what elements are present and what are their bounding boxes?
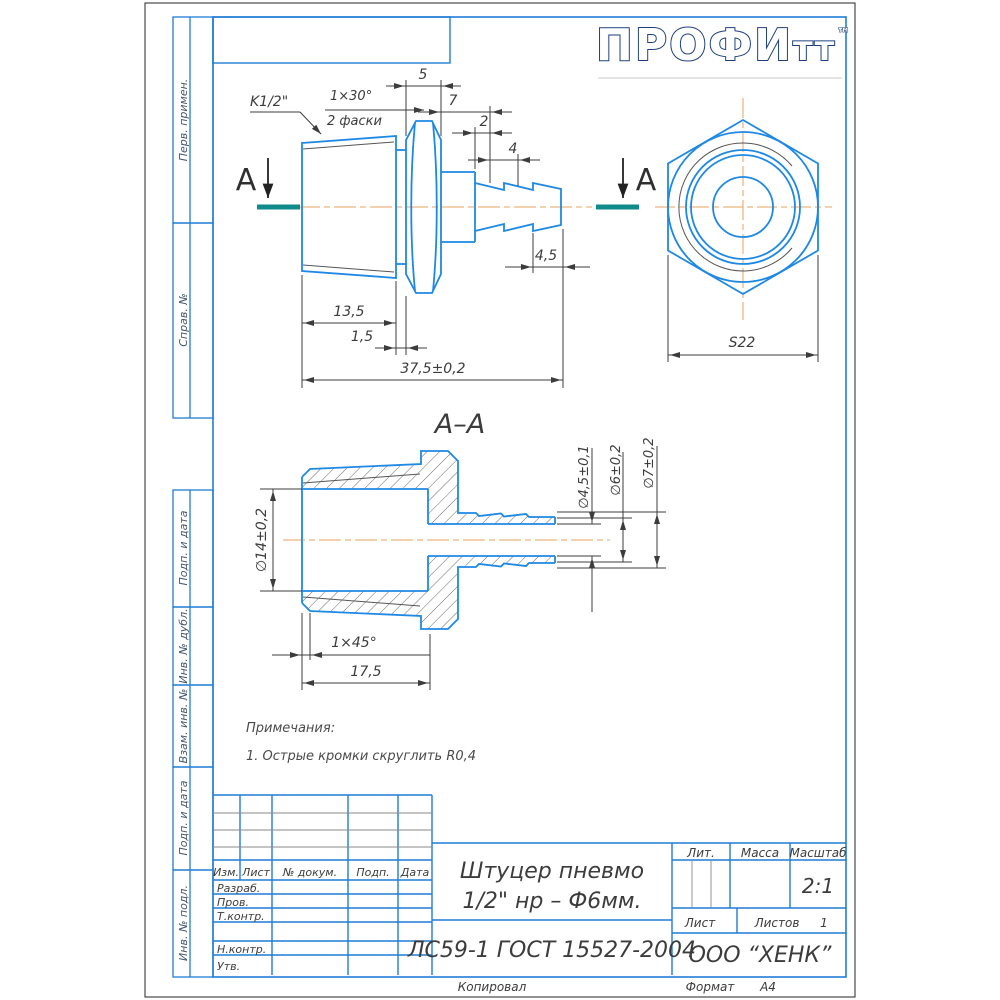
notes-item-1: 1. Острые кромки скруглить R0,4 bbox=[246, 749, 476, 764]
dim-chamfer45: 1×45° bbox=[331, 635, 376, 651]
section-label-left: А bbox=[236, 163, 257, 198]
dim-len135: 13,5 bbox=[333, 304, 364, 320]
dim-thread: K1/2" bbox=[250, 94, 288, 110]
sign-nkontr: Н.контр. bbox=[217, 943, 266, 956]
scale-label: Масштаб bbox=[789, 846, 847, 860]
sign-razrab: Разраб. bbox=[217, 882, 260, 895]
dim-dia14: ∅14±0,2 bbox=[254, 508, 270, 572]
scale-value: 2:1 bbox=[802, 874, 834, 898]
margin-label-perv-primen: Перв. примен. bbox=[177, 79, 190, 162]
sign-tkontr: Т.контр. bbox=[217, 910, 265, 923]
logo-main: ПРОФИ bbox=[596, 20, 793, 71]
dim-wrench-size: S22 bbox=[729, 335, 756, 351]
sign-prov: Пров. bbox=[217, 896, 249, 909]
material-designation: ЛС59-1 ГОСТ 15527-2004 bbox=[407, 938, 696, 963]
dim-dia7: ∅7±0,2 bbox=[642, 437, 657, 488]
dim-len2: 2 bbox=[480, 114, 489, 130]
sheets-label: Листов bbox=[754, 916, 800, 930]
rev-header-podp: Подп. bbox=[356, 866, 389, 879]
dim-chamfer30-qty: 2 фаски bbox=[327, 114, 382, 129]
margin-label-podp-data-2: Подп. и дата bbox=[177, 780, 190, 855]
dim-chamfer30: 1×30° bbox=[330, 89, 372, 104]
doc-name-line2: 1/2" нр – Ф6мм. bbox=[463, 889, 642, 914]
dim-hex-width: 5 bbox=[419, 67, 428, 83]
doc-name-line1: Штуцер пневмо bbox=[460, 859, 644, 884]
dim-len15: 1,5 bbox=[351, 329, 373, 345]
dim-dia6: ∅6±0,2 bbox=[609, 444, 624, 495]
sign-utv: Утв. bbox=[217, 960, 240, 973]
rev-header-izm: Изм. bbox=[213, 866, 239, 879]
footer-format-label: Формат bbox=[686, 980, 736, 994]
notes-title: Примечания: bbox=[246, 721, 335, 736]
dim-len4: 4 bbox=[509, 141, 518, 157]
margin-label-sprav-no: Справ. № bbox=[177, 293, 190, 347]
rev-header-data: Дата bbox=[400, 866, 430, 879]
gost-drawing-canvas: ПРОФИтт™ Перв. примен. Справ. № Подп. и … bbox=[0, 0, 1000, 1000]
logo-tm-mark: ™ bbox=[836, 26, 852, 42]
lit-label: Лит. bbox=[686, 846, 715, 860]
dim-len175: 17,5 bbox=[350, 664, 381, 680]
section-label-right: А bbox=[636, 163, 657, 198]
footer-format-value: А4 bbox=[759, 980, 776, 994]
dim-dia45: ∅4,5±0,1 bbox=[577, 445, 592, 509]
margin-label-podp-data-1: Подп. и дата bbox=[177, 510, 190, 585]
sheet-label: Лист bbox=[684, 916, 716, 930]
dim-total-length: 37,5±0,2 bbox=[400, 361, 465, 377]
margin-label-inv-podl: Инв. № подл. bbox=[177, 885, 190, 961]
footer-copied: Копировал bbox=[458, 980, 527, 994]
dim-len7: 7 bbox=[449, 93, 458, 109]
drawing-sheet-page: { "sheet": { "logo_text": "ПРОФИ", "logo… bbox=[0, 0, 1000, 1000]
company-name: ООО “ХЕНК” bbox=[689, 943, 832, 968]
dim-len45: 4,5 bbox=[535, 248, 557, 264]
section-view-title: А–А bbox=[433, 409, 485, 440]
sheets-value: 1 bbox=[820, 916, 828, 930]
rev-header-dokum: № докум. bbox=[282, 866, 337, 879]
logo-suffix: тт bbox=[793, 29, 836, 69]
rev-header-list: Лист bbox=[241, 866, 270, 879]
mass-label: Масса bbox=[741, 846, 779, 860]
margin-label-vzam-inv: Взам. инв. № bbox=[177, 689, 190, 764]
margin-label-inv-dubl: Инв. № дубл. bbox=[177, 608, 190, 683]
